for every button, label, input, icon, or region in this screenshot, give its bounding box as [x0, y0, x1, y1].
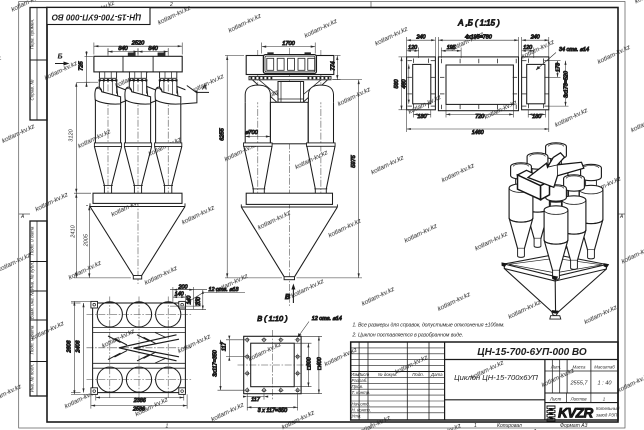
svg-text:Нач.отд.: Нач.отд.: [352, 402, 371, 407]
svg-text:774: 774: [331, 61, 337, 70]
svg-text:140: 140: [175, 292, 184, 298]
svg-text:3120: 3120: [68, 128, 74, 141]
svg-text:KVZR: KVZR: [558, 406, 594, 421]
svg-text:Инв. № дубл.: Инв. № дубл.: [30, 262, 35, 290]
svg-text:А: А: [619, 214, 624, 220]
svg-text:А: А: [201, 83, 207, 92]
svg-text:Инв. № подл.: Инв. № подл.: [30, 364, 35, 393]
svg-text:Пров.: Пров.: [352, 384, 364, 389]
svg-text:Н. контр.: Н. контр.: [352, 408, 372, 413]
svg-text:140: 140: [187, 296, 193, 305]
svg-text:12 отв. ⌀14: 12 отв. ⌀14: [312, 316, 342, 322]
svg-text:Справ. №: Справ. №: [30, 80, 35, 101]
svg-text:2606: 2606: [66, 341, 72, 354]
svg-text:Перв. примен.: Перв. примен.: [30, 19, 35, 50]
svg-text:ЦН-15-700-6УП-000 ВО: ЦН-15-700-6УП-000 ВО: [51, 13, 141, 22]
svg-text:Листов: Листов: [570, 397, 588, 402]
svg-text:Копировал: Копировал: [497, 423, 522, 429]
svg-text:ЦН-15-700-6УП-000 ВО: ЦН-15-700-6УП-000 ВО: [477, 347, 587, 358]
svg-text:6255: 6255: [219, 127, 225, 140]
svg-text:195: 195: [447, 45, 457, 51]
svg-text:2406: 2406: [76, 341, 82, 354]
svg-text:173: 173: [556, 63, 562, 72]
svg-text:Лист: Лист: [357, 372, 370, 377]
svg-text:А ,Б ( 1:15 ): А ,Б ( 1:15 ): [457, 19, 500, 28]
svg-text:1. Все размеры для справок, до: 1. Все размеры для справок, допустимые о…: [352, 323, 504, 329]
svg-text:□300: □300: [306, 357, 312, 369]
svg-text:725: 725: [79, 60, 85, 70]
svg-text:240: 240: [530, 35, 540, 41]
svg-text:Т. контр.: Т. контр.: [352, 390, 371, 395]
svg-text:Б: Б: [58, 52, 63, 61]
svg-text:№ докум.: № докум.: [378, 372, 397, 377]
svg-text:Подп. и дата: Подп. и дата: [30, 325, 35, 354]
svg-text:2586: 2586: [132, 406, 145, 412]
svg-text:840: 840: [148, 46, 158, 52]
svg-text:1700: 1700: [282, 41, 295, 47]
svg-text:□400: □400: [317, 357, 323, 369]
svg-text:1: 1: [166, 424, 169, 430]
svg-text:1: 1: [474, 423, 477, 429]
svg-text:200: 200: [196, 297, 202, 307]
svg-text:34 отв. ⌀14: 34 отв. ⌀14: [559, 47, 589, 53]
svg-text:⌀700: ⌀700: [245, 130, 259, 136]
svg-text:117: 117: [222, 341, 228, 351]
svg-text:560: 560: [394, 80, 400, 89]
svg-text:720: 720: [475, 114, 484, 120]
svg-text:В: В: [285, 292, 290, 301]
svg-text:Взам. инв. №: Взам. инв. №: [30, 291, 35, 319]
svg-text:Подп. и дата: Подп. и дата: [30, 226, 35, 255]
svg-text:Масштаб: Масштаб: [594, 365, 615, 370]
svg-text:2555,7: 2555,7: [569, 381, 588, 387]
svg-text:2005: 2005: [83, 233, 89, 247]
svg-text:3х117=350: 3х117=350: [213, 350, 219, 376]
svg-text:3 х 117=350: 3 х 117=350: [258, 408, 287, 414]
svg-text:Утв.: Утв.: [352, 413, 362, 418]
svg-text:5975: 5975: [351, 154, 357, 167]
svg-text:4х195=780: 4х195=780: [465, 35, 492, 41]
svg-text:2. Циклон поставляется в разоб: 2. Циклон поставляется в разобранном вид…: [351, 333, 463, 339]
svg-text:180: 180: [532, 114, 541, 120]
svg-text:117: 117: [251, 397, 261, 403]
svg-text:180: 180: [418, 114, 427, 120]
svg-text:Масса: Масса: [573, 365, 587, 370]
svg-text:840: 840: [118, 46, 128, 52]
svg-text:Лист: Лист: [549, 397, 562, 402]
svg-text:120: 120: [408, 45, 417, 51]
svg-text:Лит.: Лит.: [550, 365, 561, 370]
svg-text:А: А: [20, 214, 25, 220]
svg-text:Дата: Дата: [430, 372, 443, 377]
svg-text:1 : 40: 1 : 40: [598, 381, 613, 387]
svg-text:В ( 1:10 ): В ( 1:10 ): [257, 314, 288, 323]
svg-text:Подп.: Подп.: [412, 372, 424, 377]
svg-text:завод РЗП: завод РЗП: [595, 413, 618, 418]
svg-text:Котельный: Котельный: [596, 406, 620, 411]
svg-text:Формат А3: Формат А3: [560, 423, 588, 429]
svg-text:120: 120: [523, 45, 532, 51]
svg-text:240: 240: [416, 35, 426, 41]
svg-text:2520: 2520: [131, 41, 145, 47]
svg-text:2: 2: [169, 2, 173, 8]
svg-text:200: 200: [178, 284, 188, 290]
svg-text:2386: 2386: [133, 398, 146, 404]
svg-text:2410: 2410: [70, 224, 76, 238]
svg-text:3х173=520: 3х173=520: [564, 71, 570, 98]
svg-text:Циклон ЦН-15-700х6УП: Циклон ЦН-15-700х6УП: [454, 373, 538, 382]
svg-text:12 отв. ⌀18: 12 отв. ⌀18: [208, 287, 238, 293]
svg-text:Разраб.: Разраб.: [352, 378, 368, 383]
svg-text:1460: 1460: [472, 130, 484, 136]
svg-text:460: 460: [402, 80, 408, 89]
